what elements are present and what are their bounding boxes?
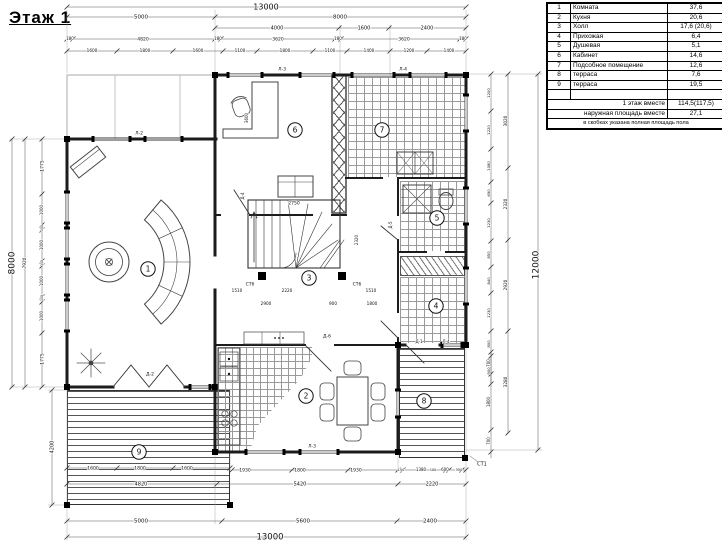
legend-room-area: 20,6 [668,13,722,23]
dim-label: 12000 [532,250,542,279]
legend-room-name: Кухня [571,13,668,23]
dim-label: 1930 [239,468,251,474]
window-jamb [64,258,70,261]
window-jamb [144,136,147,142]
legend-row: 6Кабинет14,6 [547,51,722,61]
stove-burners [222,411,228,417]
dim-label: 5000 [134,519,148,525]
dim-label: 2400 [423,519,437,525]
window-jamb [129,136,132,142]
legend-room-name: Комната [571,3,668,13]
legend-room-number: 8 [547,71,571,81]
window-jamb [64,227,70,230]
element-tag: Л-2 [135,131,143,137]
window-jamb [463,94,469,97]
log-posts [64,72,469,508]
legend-row: 1Комната37,6 [547,3,722,13]
dim-label: 13000 [256,533,283,543]
floorplan-page: Этаж 1 [0,0,722,548]
chair [320,404,334,421]
chair [344,427,361,441]
legend-summary-row: 1 этаж вместе114,5(117,5) [547,99,722,109]
loveseat [278,176,313,197]
legend-room-number: 4 [547,32,571,42]
dim-label: 3600 [244,112,249,123]
dim-label: 800 [486,340,491,348]
dim-label: 1380 [416,467,427,472]
office-furniture [223,82,313,197]
window-jamb [463,130,469,133]
room-number: 9 [137,448,142,457]
dim-label: 1100 [235,48,246,53]
element-tag: СТ6 [246,282,255,288]
dim-label: 900 [486,367,491,375]
window-jamb [299,72,302,78]
dim-label: 4200 [50,441,56,454]
window-jamb [463,303,469,306]
dim-label: 1800 [134,466,146,472]
legend-room-name: Прихожая [571,32,668,42]
dim-label: 1600 [87,466,99,472]
legend-row: 5Душевая5,1 [547,42,722,52]
element-tag: СТ6 [353,282,362,288]
dim-label: 4820 [135,482,148,488]
stair-post [258,272,266,280]
dimension-labels-group: 1300050008000400016002400180482018036201… [8,3,542,543]
legend-room-number: 3 [547,23,571,33]
legend-row: 9терраса19,5 [547,80,722,90]
legend-note: в скобках указана полная площадь пола [547,119,722,129]
element-tag: Д-5 [388,221,393,229]
room-number: 2 [304,392,309,401]
element-tag: Д-2 [146,372,154,378]
dim-label: 1800 [367,301,378,306]
st1-leader [470,456,478,462]
dim-label: 1400 [444,48,455,53]
legend-row: 4Прихожая6,4 [547,32,722,42]
legend-table: 1Комната37,62Кухня20,63Холл17,6 (20,6)4П… [546,2,722,130]
dim-label: 2920 [503,279,508,290]
legend-room-name: терраса [571,80,668,90]
dim-label: 690 [486,189,491,197]
legend-cell [668,90,722,100]
dim-label: 1600 [193,48,204,53]
chair [371,383,385,400]
dim-label: 350 [456,468,463,472]
legend-room-name: Душевая [571,42,668,52]
element-tag: Л-3 [278,67,286,73]
dim-label: 1230 [486,218,491,228]
room-number: 8 [422,397,427,406]
dim-label: 13000 [253,3,278,12]
legend-room-area: 12,6 [668,61,722,71]
dim-label: 1080 [486,161,491,171]
dim-label: 840 [486,277,491,285]
legend-room-area: 6,4 [668,32,722,42]
chaise [70,146,105,178]
legend-summary-value: 114,5(117,5) [668,99,722,109]
dim-label: 1600 [358,26,371,32]
window-jamb [64,299,70,302]
legend-room-number: 7 [547,61,571,71]
room-number: 3 [307,274,312,283]
window-jamb [92,136,95,142]
dim-label: 1230 [486,308,491,318]
dim-label: 1000 [39,310,44,321]
window-jamb [395,389,401,392]
window-jamb [395,416,401,419]
dim-label: 150 [398,468,405,472]
window-jamb [181,136,184,142]
chair [344,361,361,375]
legend-room-area: 17,6 (20,6) [668,23,722,33]
legend-room-name: Подсобное помещение [571,61,668,71]
dim-label: 1510 [232,288,243,293]
shower-room-fixtures [403,185,453,213]
stairs [248,200,346,280]
legend-room-number: 2 [547,13,571,23]
annex-outline [67,75,215,139]
legend-cell [547,90,571,100]
dining-table [337,377,368,425]
window-jamb [209,384,212,390]
dim-label: 5600 [296,519,310,525]
legend-summary-value: 27,1 [668,109,722,119]
window-jamb [463,223,469,226]
room-number: 4 [434,302,439,311]
dim-label: 2220 [282,288,293,293]
dim-label: 1775 [40,353,46,365]
dim-label: 4820 [137,37,149,43]
dim-label: 1800 [294,468,306,474]
upper-counter [244,332,304,344]
legend-room-area: 37,6 [668,3,722,13]
element-tag: Д-1 [415,339,423,344]
dim-label: 2750 [288,201,300,207]
dim-label: 7920 [22,257,27,268]
utility-equipment [397,152,433,174]
legend-room-number: 6 [547,51,571,61]
dim-label: 1800 [486,396,491,407]
legend-cell [571,90,668,100]
dim-label: 1800 [140,48,151,53]
dim-label: 1600 [181,466,193,472]
window-jamb [445,72,448,78]
legend-room-area: 19,5 [668,80,722,90]
dim-label: 1800 [280,48,291,53]
window-jamb [351,72,354,78]
dim-label: 700 [486,359,491,367]
chair [371,404,385,421]
legend-room-number: 1 [547,3,571,13]
legend-summary-label: 1 этаж вместе [547,99,668,109]
dim-label: 1600 [87,48,98,53]
element-tag: СТ1 [477,462,487,468]
element-tag: Л-4 [399,67,407,73]
legend-row: 2Кухня20,6 [547,13,722,23]
window-jamb [463,267,469,270]
dim-label: 1510 [366,288,377,293]
dim-label: 2400 [421,26,434,32]
dim-label: 850 [486,251,491,259]
dim-label: 4000 [271,26,284,32]
dim-label: 1220 [486,125,491,135]
dim-label: 1000 [39,239,44,250]
chair [320,383,334,400]
window-jamb [64,191,70,194]
legend-room-number: 9 [547,80,571,90]
dim-label: 1100 [325,48,336,53]
dim-label: 5420 [294,482,307,488]
dim-label: 1000 [39,204,44,215]
dim-label: 1200 [486,88,491,98]
element-tag: Д-6 [323,334,331,340]
room-number: 5 [435,214,440,223]
dim-label: 2320 [503,198,508,209]
window-jamb [409,72,412,78]
legend-row: 3Холл17,6 (20,6) [547,23,722,33]
legend-row: 8терраса7,6 [547,71,722,81]
dim-label: 3620 [398,37,410,43]
dim-label: 180 [214,36,222,41]
dim-label: 1400 [364,48,375,53]
room-number: 6 [293,126,298,135]
dim-label: 900 [329,301,337,306]
dim-label: 180 [334,36,342,41]
legend-room-number: 5 [547,42,571,52]
window-jamb [189,384,192,390]
legend-room-area: 5,1 [668,42,722,52]
dim-label: 1930 [350,468,362,474]
window-jamb [245,449,248,455]
dim-label: 1200 [404,48,415,53]
dim-label: 1000 [39,275,44,286]
dim-label: 8000 [8,251,18,274]
legend-room-area: 14,6 [668,51,722,61]
dim-label: 150 [40,225,44,231]
legend-note-row: в скобках указана полная площадь пола [547,119,722,129]
window-jamb [283,449,286,455]
dim-label: 3620 [272,37,284,43]
dim-label: 100 [430,468,436,472]
window-jamb [64,222,70,225]
window-jamb [333,72,336,78]
dim-label: 5000 [134,15,148,21]
dim-label: 2320 [354,234,359,245]
window-jamb [393,72,396,78]
dim-label: 150 [40,260,44,266]
dim-label: 3020 [503,115,508,126]
dim-label: 180 [459,36,467,41]
window-jamb [299,449,302,455]
living-room-furniture [70,146,190,377]
legend-empty-row [547,90,722,100]
windows-group [64,72,469,455]
element-tag: Д-4 [240,192,245,200]
dim-label: 1775 [40,160,46,172]
window-jamb [261,72,264,78]
element-tag: Л-4 [443,339,450,344]
legend-room-name: Кабинет [571,51,668,61]
dim-label: 600 [441,467,449,472]
dimension-lines-group [10,5,540,539]
exterior-walls [67,75,467,453]
window-jamb [227,72,230,78]
room-number: 7 [380,126,385,135]
dim-label: 2220 [426,482,439,488]
window-jamb [461,342,464,348]
window-jamb [64,294,70,297]
legend-row: 7Подсобное помещение12,6 [547,61,722,71]
window-jamb [64,330,70,333]
dim-label: 2900 [261,301,272,306]
stair-post [338,272,346,280]
legend-room-name: Холл [571,23,668,33]
legend-summary-label: наружная площадь вместе [547,109,668,119]
dim-label: 8000 [333,15,347,21]
double-door-D2 [113,365,149,387]
dim-label: 150 [40,295,44,301]
legend-room-area: 7,6 [668,71,722,81]
window-jamb [337,449,340,455]
room-number: 1 [146,265,151,274]
window-jamb [64,263,70,266]
dim-label: 700 [486,437,491,445]
kitchen-counter [218,348,240,445]
element-tag: Л-3 [308,444,316,450]
dim-label: 180 [66,36,74,41]
legend-summary-row: наружная площадь вместе27,1 [547,109,722,119]
dim-label: 3280 [503,376,508,387]
door-leaves [113,190,424,387]
legend-room-name: терраса [571,71,668,81]
kitchen-fixtures [218,332,385,445]
plant [77,349,105,377]
window-jamb [463,187,469,190]
